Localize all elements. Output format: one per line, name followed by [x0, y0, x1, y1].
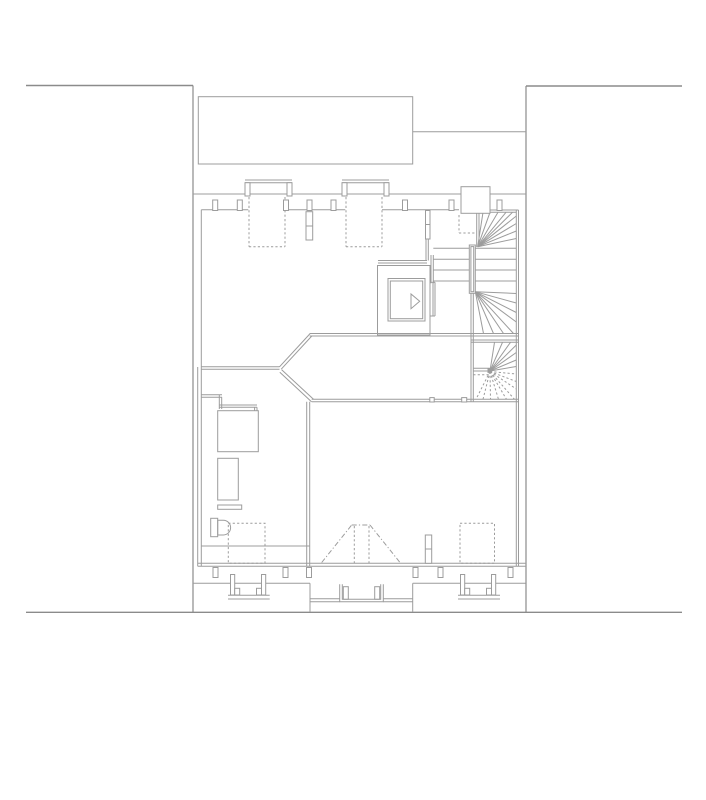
dormer-s-slope-l	[322, 525, 352, 563]
elevator-direction-triangle	[411, 294, 420, 309]
stair2-winder-dn-5	[490, 372, 507, 400]
door-mark-hall-1	[430, 398, 434, 402]
toilet-tank	[211, 518, 218, 536]
elevator-shaft	[378, 266, 431, 336]
window-mullion-n2	[237, 200, 242, 211]
stair2-winder-dn-4	[490, 372, 515, 400]
cabinet	[218, 458, 239, 500]
stair-winder-mid-5	[475, 292, 513, 334]
stair2-newel	[488, 369, 492, 373]
floor-plan-drawing	[0, 0, 706, 800]
stair2-winder-dn-7	[490, 372, 491, 400]
window-sw-jamb-r	[262, 575, 266, 596]
window-se-foot-l	[465, 588, 470, 595]
stair2-winder-dn-9	[476, 372, 490, 400]
front-roof-outline	[198, 97, 412, 164]
dormer-nw1-jamb-l	[245, 183, 250, 196]
skylight-se-projection	[460, 523, 495, 563]
window-s-jamb-l	[343, 587, 348, 600]
dormer-nw1-jamb-r	[287, 183, 292, 196]
stair-spine-outer	[469, 245, 475, 293]
dormer-s-slope-r	[370, 525, 400, 563]
window-sw-foot-l	[235, 588, 240, 595]
window-mullion-n4	[307, 200, 312, 211]
window-se-jamb-l	[461, 575, 465, 596]
window-mullion-n1	[213, 200, 218, 211]
shelf	[218, 505, 242, 509]
toilet-bowl	[218, 520, 231, 535]
elevator-cab-outer	[388, 279, 425, 322]
skylight-sw-projection	[228, 523, 265, 563]
stair-winder-mid-3	[475, 292, 516, 313]
stair-window-box	[461, 187, 490, 214]
angled-wall-ne-a	[280, 334, 311, 367]
window-mullion-s4	[413, 568, 418, 578]
angled-wall-ne-b	[281, 336, 312, 369]
window-sw-jamb-l	[231, 575, 235, 596]
window-s-jamb-r	[375, 587, 380, 600]
window-mullion-n8	[497, 200, 502, 211]
angled-wall-se-a	[282, 370, 314, 400]
wardrobe	[218, 411, 259, 452]
window-se-jamb-r	[492, 575, 496, 596]
window-mullion-n7	[449, 200, 454, 211]
floor-plan-page	[0, 0, 706, 800]
dormer-nw2-jamb-r	[384, 183, 389, 196]
angled-wall-se-b	[280, 372, 312, 402]
door-mark-hall-2	[462, 398, 467, 402]
stair2-winder-dn-8	[483, 372, 490, 400]
window-mullion-s2	[283, 568, 288, 578]
window-sw-foot-r	[257, 588, 262, 595]
window-mullion-s6	[508, 568, 513, 578]
window-se-foot-r	[487, 588, 492, 595]
stair-winder-top-8	[478, 231, 517, 247]
dormer-nw2-jamb-l	[342, 183, 347, 196]
window-mullion-n5	[331, 200, 336, 211]
window-mullion-s5	[438, 568, 443, 578]
window-mullion-s3	[307, 568, 312, 578]
window-mullion-n3	[284, 200, 289, 211]
window-mullion-s1	[213, 568, 218, 578]
window-mullion-n6	[403, 200, 408, 211]
